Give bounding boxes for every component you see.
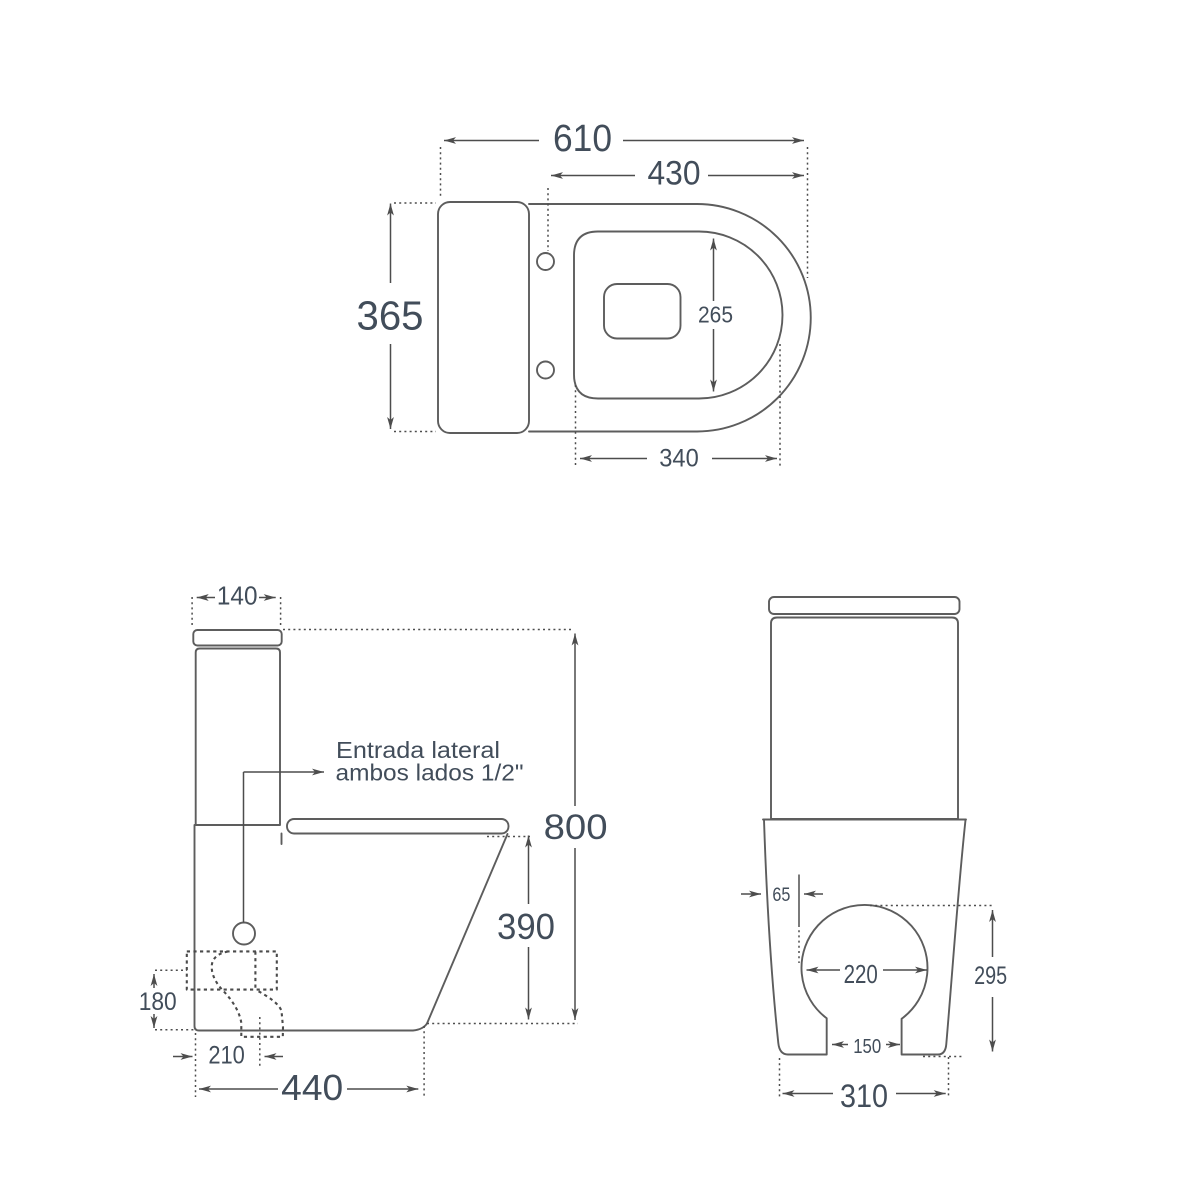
svg-text:180: 180 — [139, 988, 177, 1016]
svg-text:150: 150 — [853, 1036, 881, 1058]
svg-text:65: 65 — [772, 885, 790, 906]
svg-text:220: 220 — [844, 959, 878, 989]
svg-text:390: 390 — [497, 906, 555, 947]
svg-text:365: 365 — [357, 293, 424, 339]
svg-text:210: 210 — [208, 1042, 245, 1070]
svg-text:610: 610 — [553, 118, 612, 160]
svg-text:440: 440 — [281, 1067, 343, 1108]
svg-text:310: 310 — [840, 1078, 888, 1114]
svg-text:265: 265 — [698, 302, 733, 328]
svg-text:340: 340 — [659, 445, 699, 473]
svg-text:140: 140 — [217, 580, 258, 610]
svg-text:295: 295 — [974, 962, 1007, 990]
svg-text:ambos lados 1/2": ambos lados 1/2" — [336, 760, 524, 786]
svg-text:430: 430 — [648, 155, 701, 193]
svg-text:800: 800 — [544, 808, 608, 847]
